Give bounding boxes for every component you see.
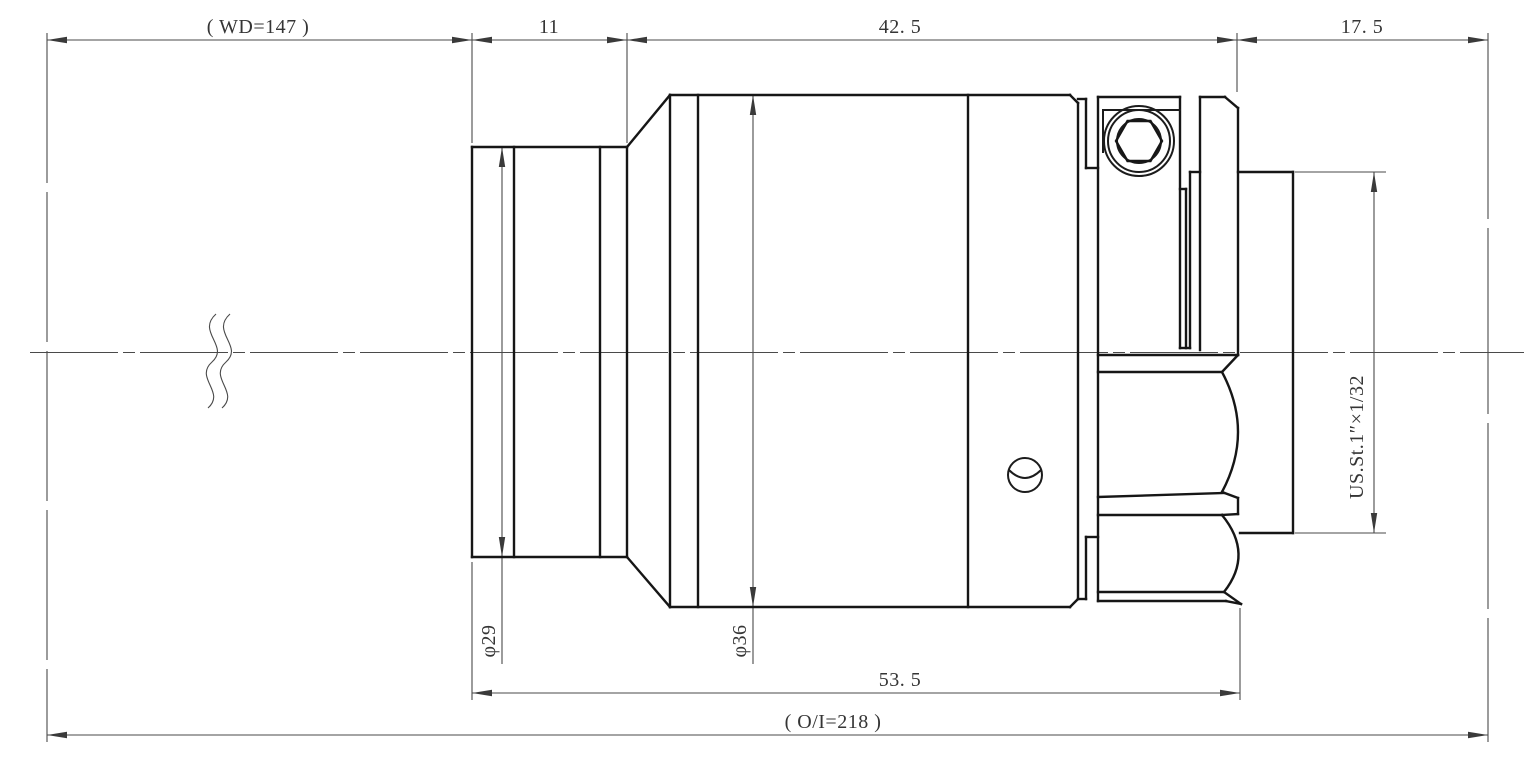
lens-outline-drawing: ( WD=147 ) 11 42. 5 17. 5 53. 5 ( O/I=21… <box>0 0 1538 765</box>
cone-transition <box>627 95 670 607</box>
dim-body-diameter-label: φ36 <box>729 624 751 657</box>
dim-front-diameter-label: φ29 <box>478 624 500 657</box>
dim-body-length-label: 42. 5 <box>879 16 922 38</box>
rear-flange-neck <box>1078 99 1098 599</box>
dim-flange-distance-label: 17. 5 <box>1341 16 1384 38</box>
dim-front-length-label: 11 <box>539 16 559 38</box>
lens-outline-drawing-sheet: ( WD=147 ) 11 42. 5 17. 5 53. 5 ( O/I=21… <box>0 0 1538 765</box>
barrel-length-dimension: 53. 5 <box>472 562 1240 700</box>
dim-barrel-length-label: 53. 5 <box>879 669 922 691</box>
body-diameter-dimension: φ36 <box>729 95 756 664</box>
hex-socket-icon <box>1116 121 1162 161</box>
main-body <box>670 95 1078 607</box>
dim-working-distance-label: ( WD=147 ) <box>207 16 310 38</box>
object-image-dimension: ( O/I=218 ) <box>47 711 1488 738</box>
dim-object-image-label: ( O/I=218 ) <box>785 711 882 733</box>
top-dimension-chain: ( WD=147 ) 11 42. 5 17. 5 <box>47 16 1488 143</box>
set-screw-hole <box>1008 458 1042 492</box>
hex-nut-section <box>1098 355 1241 604</box>
clamp-block <box>1098 97 1238 601</box>
clamp-screw <box>1103 106 1180 176</box>
front-diameter-dimension: φ29 <box>478 147 505 664</box>
break-symbol <box>206 314 231 408</box>
dim-mount-thread-label: US.St.1″×1/32 <box>1346 375 1368 499</box>
